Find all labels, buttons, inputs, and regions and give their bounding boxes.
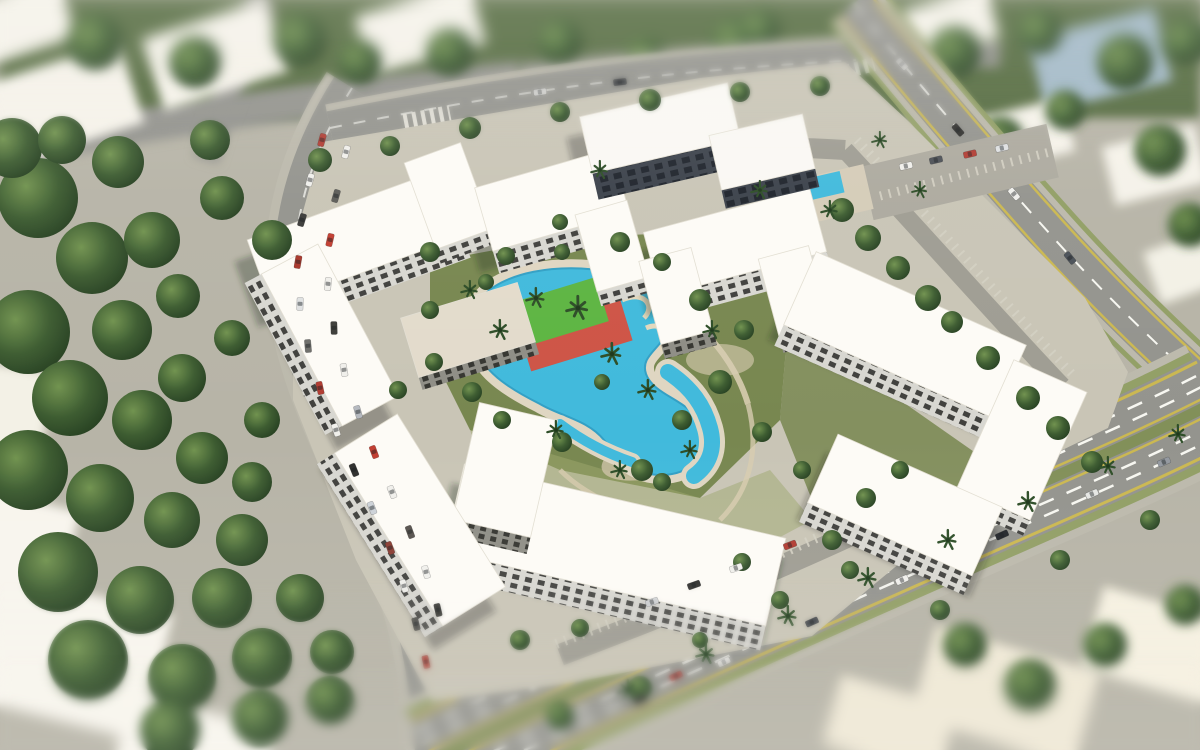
palm-crown: [468, 288, 472, 292]
tree-canopy: [571, 619, 589, 637]
tree-canopy: [92, 300, 152, 360]
tree-canopy: [274, 14, 326, 66]
tree-canopy: [176, 432, 228, 484]
tree-canopy: [538, 20, 582, 64]
palm-crown: [918, 188, 921, 191]
aerial-render-residential-compound: [0, 0, 1200, 750]
palm-crown: [704, 652, 708, 656]
palm-crown: [646, 388, 650, 392]
tree-canopy: [891, 461, 909, 479]
palm-crown: [688, 448, 692, 452]
tree-canopy: [1140, 510, 1160, 530]
tree-canopy: [56, 222, 128, 294]
tree-canopy: [976, 346, 1000, 370]
tree-canopy: [752, 422, 772, 442]
tree-canopy: [856, 488, 876, 508]
palm-crown: [1026, 500, 1030, 504]
palm-crown: [786, 614, 790, 618]
tree-canopy: [425, 353, 443, 371]
car-windshield: [325, 282, 330, 287]
tree-canopy: [169, 36, 221, 88]
tree-canopy: [232, 462, 272, 502]
tree-canopy: [244, 402, 280, 438]
tree-canopy: [158, 354, 206, 402]
tree-canopy: [92, 136, 144, 188]
tree-canopy: [943, 623, 987, 667]
car-windshield: [537, 89, 542, 95]
tree-canopy: [214, 320, 250, 356]
tree-canopy: [653, 473, 671, 491]
tree-canopy: [306, 676, 354, 724]
palm-crown: [618, 468, 622, 472]
tree-canopy: [1081, 451, 1103, 473]
palm-crown: [554, 428, 558, 432]
tree-canopy: [653, 253, 671, 271]
palm-crown: [610, 352, 614, 356]
tree-canopy: [730, 82, 750, 102]
tree-canopy: [610, 232, 630, 252]
tree-canopy: [338, 40, 382, 84]
palm-crown: [534, 296, 538, 300]
tree-canopy: [1050, 550, 1070, 570]
car-windshield: [618, 79, 623, 84]
tree-canopy: [550, 102, 570, 122]
tree-canopy: [48, 620, 128, 700]
tree-canopy: [1134, 124, 1186, 176]
tree-canopy: [38, 116, 86, 164]
tree-canopy: [810, 76, 830, 96]
palm-crown: [598, 168, 602, 172]
tree-canopy: [124, 212, 180, 268]
tree-canopy: [672, 410, 692, 430]
tree-canopy: [554, 244, 570, 260]
tree-canopy: [148, 644, 216, 712]
tree-canopy: [66, 464, 134, 532]
tree-canopy: [1046, 416, 1070, 440]
tree-canopy: [1083, 623, 1127, 667]
tree-canopy: [426, 28, 474, 76]
tree-canopy: [232, 628, 292, 688]
tree-canopy: [216, 514, 268, 566]
tree-canopy: [1045, 90, 1085, 130]
tree-canopy: [497, 247, 515, 265]
tree-canopy: [734, 320, 754, 340]
tree-canopy: [1004, 659, 1056, 711]
tree-canopy: [793, 461, 811, 479]
palm-crown: [946, 538, 950, 542]
tree-canopy: [631, 459, 653, 481]
scene-svg: [0, 0, 1200, 750]
tree-canopy: [1016, 386, 1040, 410]
tree-canopy: [841, 561, 859, 579]
palm-crown: [866, 576, 870, 580]
tree-canopy: [252, 220, 292, 260]
tree-canopy: [144, 492, 200, 548]
tree-canopy: [190, 120, 230, 160]
tree-canopy: [67, 14, 123, 70]
tree-canopy: [310, 630, 354, 674]
car-windshield: [331, 326, 336, 330]
tree-canopy: [493, 411, 511, 429]
tree-canopy: [106, 566, 174, 634]
tree-canopy: [552, 432, 572, 452]
palm-crown: [758, 188, 762, 192]
tree-canopy: [478, 274, 494, 290]
tree-canopy: [32, 360, 108, 436]
tree-canopy: [421, 301, 439, 319]
tree-canopy: [930, 600, 950, 620]
tree-canopy: [915, 285, 941, 311]
tree-canopy: [1097, 34, 1153, 90]
palm-crown: [878, 138, 881, 141]
palm-crown: [710, 328, 714, 332]
palm-crown: [576, 306, 581, 311]
car-windshield: [297, 302, 302, 306]
tree-canopy: [941, 311, 963, 333]
tree-canopy: [771, 591, 789, 609]
tree-canopy: [546, 702, 574, 730]
tree-canopy: [822, 530, 842, 550]
scene-root: [0, 0, 1200, 750]
tree-canopy: [380, 136, 400, 156]
tree-canopy: [708, 370, 732, 394]
tree-canopy: [1018, 10, 1062, 54]
tree-canopy: [200, 176, 244, 220]
tree-canopy: [389, 381, 407, 399]
tree-canopy: [156, 274, 200, 318]
tree-canopy: [112, 390, 172, 450]
tree-canopy: [276, 574, 324, 622]
tree-canopy: [420, 242, 440, 262]
tree-canopy: [308, 148, 332, 172]
tree-canopy: [594, 374, 610, 390]
tree-canopy: [855, 225, 881, 251]
tree-canopy: [552, 214, 568, 230]
tree-canopy: [459, 117, 481, 139]
tree-canopy: [639, 89, 661, 111]
tree-canopy: [510, 630, 530, 650]
tree-canopy: [192, 568, 252, 628]
palm-crown: [1106, 464, 1110, 468]
palm-crown: [498, 328, 502, 332]
car-windshield: [305, 344, 310, 348]
tree-canopy: [18, 532, 98, 612]
palm-crown: [626, 688, 630, 692]
tree-canopy: [232, 690, 288, 746]
palm-crown: [828, 208, 832, 212]
tree-canopy: [462, 382, 482, 402]
palm-crown: [1176, 432, 1180, 436]
tree-canopy: [689, 289, 711, 311]
tree-canopy: [886, 256, 910, 280]
